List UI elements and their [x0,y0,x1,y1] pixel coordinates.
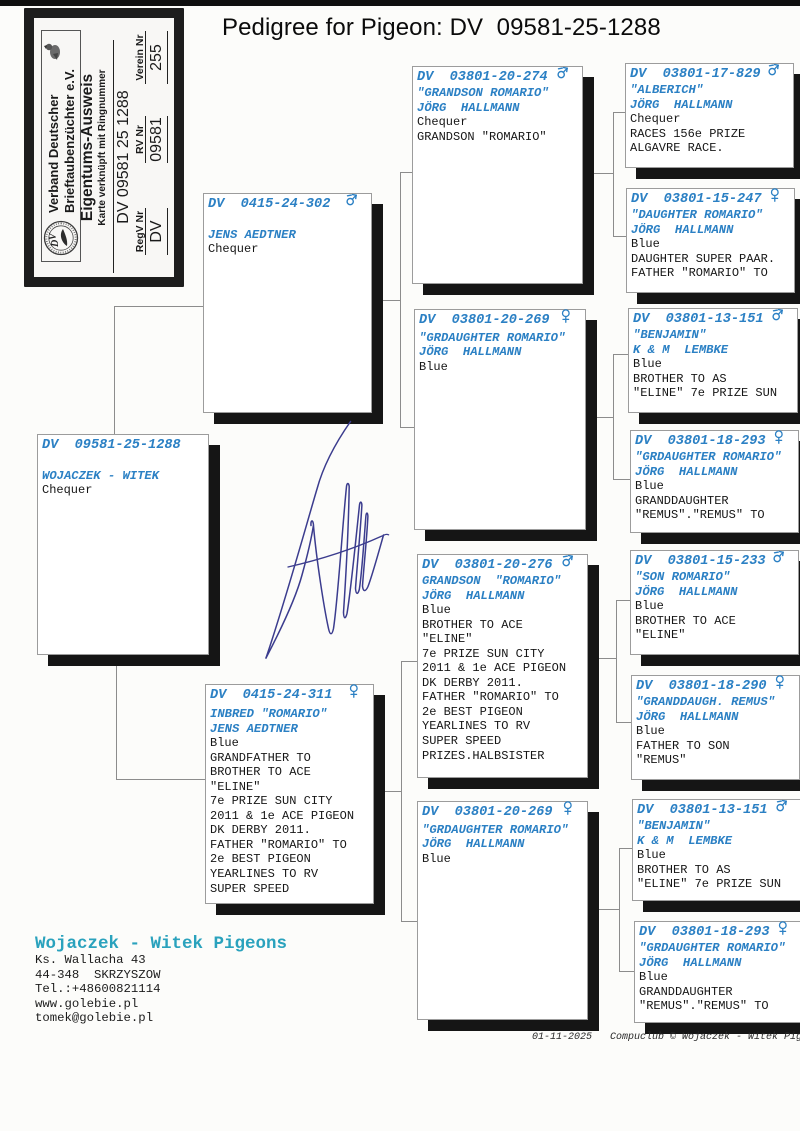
svg-text:D: D [50,240,61,248]
svg-text:V: V [48,232,59,240]
